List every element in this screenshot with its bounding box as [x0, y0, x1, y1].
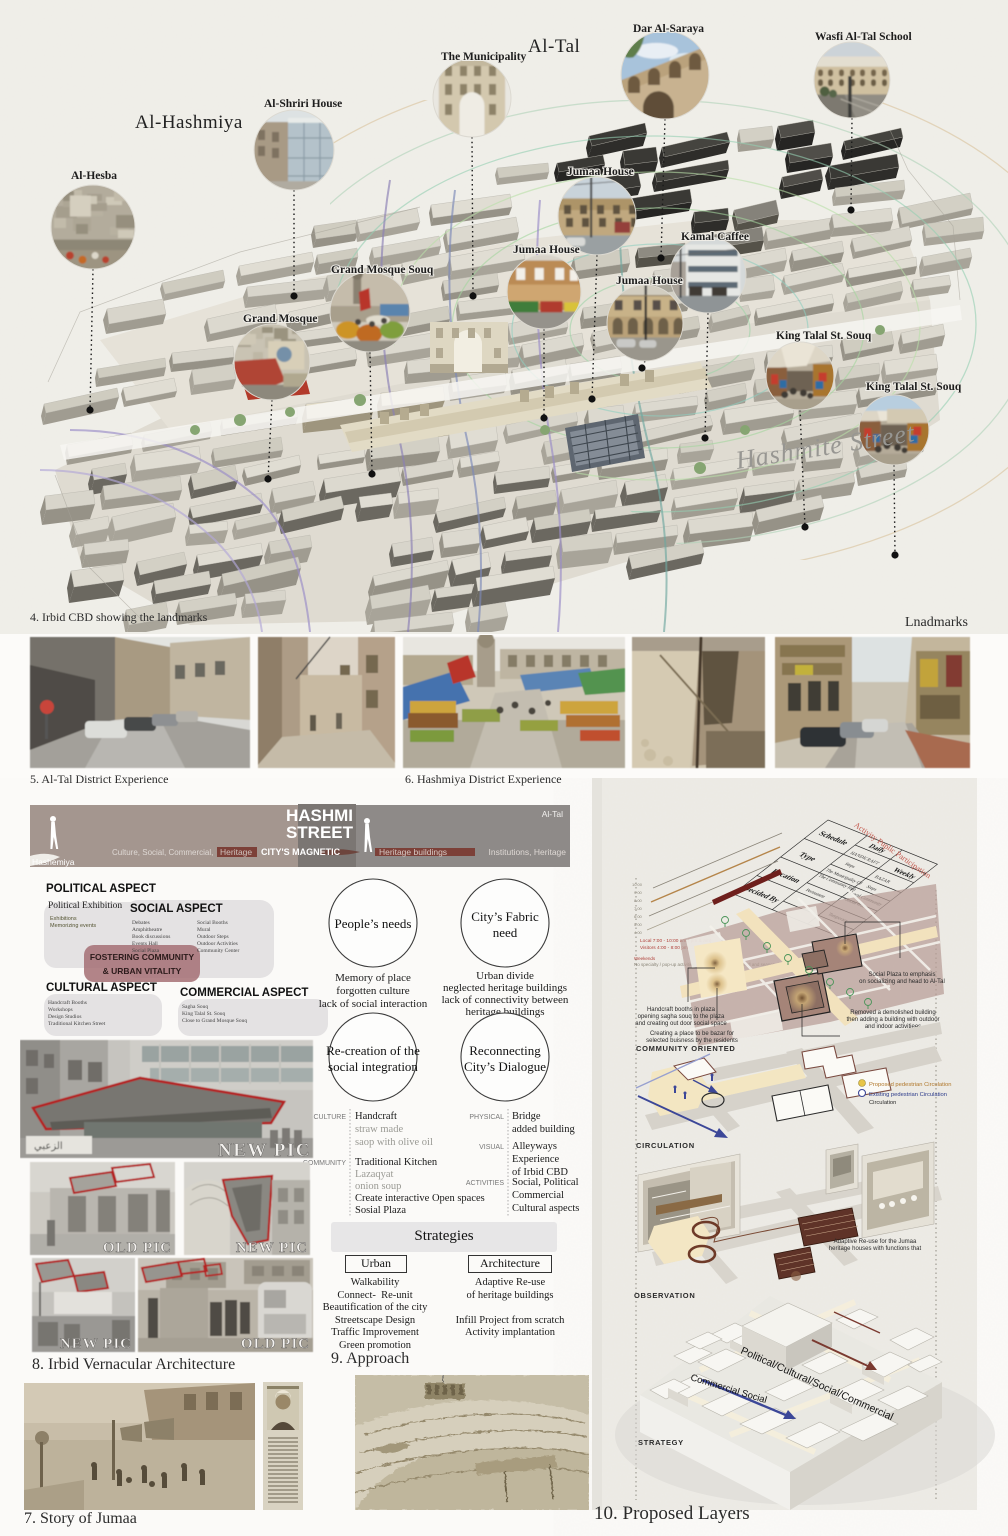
svg-text:Amphitheatre: Amphitheatre — [132, 927, 163, 933]
svg-text:social integration: social integration — [328, 1059, 418, 1074]
svg-text:Community Center: Community Center — [197, 948, 239, 954]
svg-text:and creating out door social s: and creating out door social space — [635, 1021, 727, 1027]
svg-text:neglected heritage buildings: neglected heritage buildings — [443, 982, 567, 994]
svg-text:Bridge: Bridge — [512, 1111, 541, 1122]
svg-text:STRATEGY: STRATEGY — [638, 1438, 684, 1447]
svg-text:Handcraft: Handcraft — [355, 1111, 397, 1122]
svg-text:SOCIAL ASPECT: SOCIAL ASPECT — [130, 903, 223, 915]
svg-text:People’s needs: People’s needs — [335, 916, 412, 931]
svg-text:OLD PIC: OLD PIC — [103, 1240, 172, 1256]
svg-text:Create interactive Open spaces: Create interactive Open spaces — [355, 1193, 485, 1204]
svg-text:Kamal Caffee: Kamal Caffee — [681, 231, 749, 243]
svg-text:straw made: straw made — [355, 1124, 403, 1135]
svg-text:Experience: Experience — [512, 1154, 560, 1165]
svg-text:Heritage: Heritage — [220, 847, 252, 857]
svg-text:ACTIVITIES: ACTIVITIES — [466, 1180, 504, 1187]
svg-text:Mural: Mural — [197, 927, 211, 933]
svg-text:City’s Fabric: City’s Fabric — [471, 909, 539, 924]
svg-text:forgotten culture: forgotten culture — [336, 985, 410, 997]
svg-text:Social Plaza: Social Plaza — [132, 948, 160, 954]
svg-text:Workshops: Workshops — [48, 1007, 73, 1013]
svg-text:CIRCULATION: CIRCULATION — [636, 1141, 695, 1150]
svg-text:Social Plaza to emphasis: Social Plaza to emphasis — [868, 972, 935, 978]
svg-text:heritage houses with function: heritage houses with functions that — [829, 1246, 922, 1252]
svg-text:9:00: 9:00 — [634, 890, 643, 895]
svg-text:Circulation: Circulation — [869, 1100, 896, 1106]
svg-text:Permanent: Permanent — [803, 889, 826, 900]
svg-text:Culture, Social, Commercial,: Culture, Social, Commercial, — [112, 848, 213, 857]
svg-text:CULTURE: CULTURE — [313, 1114, 346, 1121]
svg-text:Memory of place: Memory of place — [335, 972, 411, 984]
svg-text:Cultural aspects: Cultural aspects — [512, 1203, 579, 1214]
svg-text:need: need — [493, 925, 518, 940]
svg-text:Jumaa House: Jumaa House — [513, 244, 580, 256]
svg-text:Close to Grand Mosque Souq: Close to Grand Mosque Souq — [182, 1018, 247, 1024]
svg-text:CULTURAL ASPECT: CULTURAL ASPECT — [46, 982, 157, 994]
svg-text:Handcraft booths in plaza: Handcraft booths in plaza — [647, 1007, 716, 1013]
svg-text:The Municipality: The Municipality — [441, 51, 527, 63]
svg-text:Type: Type — [796, 851, 818, 863]
svg-text:Outdoor Steps: Outdoor Steps — [197, 934, 229, 940]
svg-text:Reconnecting: Reconnecting — [469, 1043, 541, 1058]
svg-text:Commercial: Commercial — [512, 1190, 564, 1201]
svg-text:then adding a building with ou: then adding a building with outdoor — [846, 1017, 939, 1023]
svg-text:10:00: 10:00 — [632, 882, 643, 887]
svg-text:Visitors 4:00 - 8:00 pm: Visitors 4:00 - 8:00 pm — [640, 945, 688, 951]
svg-text:Book discussions: Book discussions — [132, 934, 170, 940]
svg-text:Design Studios: Design Studios — [48, 1014, 81, 1020]
svg-text:Steps: Steps — [864, 885, 877, 892]
svg-text:Outdoor Activities: Outdoor Activities — [197, 941, 238, 947]
svg-text:Social, Political: Social, Political — [512, 1177, 579, 1188]
svg-text:Steps: Steps — [843, 862, 856, 869]
svg-text:4:00: 4:00 — [634, 930, 643, 935]
svg-text:Grand Mosque: Grand Mosque — [243, 313, 317, 325]
svg-text:Jumaa House: Jumaa House — [616, 275, 683, 287]
svg-text:Alleyways: Alleyways — [512, 1141, 557, 1152]
svg-text:Al-Hesba: Al-Hesba — [71, 170, 117, 182]
svg-text:COMMERCIAL ASPECT: COMMERCIAL ASPECT — [180, 987, 308, 999]
svg-text:Existing pedestrian Circulatio: Existing pedestrian Circulation — [869, 1092, 947, 1098]
svg-text:Adaptive Re-use for the Jumaa: Adaptive Re-use for the Jumaa — [834, 1239, 917, 1245]
svg-text:Traditional Kitchen: Traditional Kitchen — [355, 1157, 438, 1168]
svg-text:Hashemiya: Hashemiya — [32, 857, 75, 867]
svg-text:Lazaqyat: Lazaqyat — [355, 1169, 394, 1180]
svg-text:Dar Al-Saraya: Dar Al-Saraya — [633, 23, 704, 35]
svg-text:onion soup: onion soup — [355, 1181, 401, 1192]
svg-text:Exhibitions: Exhibitions — [50, 916, 77, 922]
svg-text:Sagha Souq: Sagha Souq — [182, 1004, 208, 1010]
svg-text:PHYSICAL: PHYSICAL — [469, 1114, 504, 1121]
svg-text:Jumaa House: Jumaa House — [567, 166, 634, 178]
svg-text:saop with olive oil: saop with olive oil — [355, 1137, 433, 1148]
svg-text:Creating a place to be bazar f: Creating a place to be bazar for — [650, 1031, 734, 1037]
svg-text:5:00: 5:00 — [634, 922, 643, 927]
svg-text:Sosial Plaza: Sosial Plaza — [355, 1205, 406, 1216]
svg-text:Wasfi Al-Tal School: Wasfi Al-Tal School — [815, 31, 912, 43]
svg-text:6:00: 6:00 — [634, 914, 643, 919]
svg-text:Traditional Kitchen Street: Traditional Kitchen Street — [48, 1021, 106, 1027]
svg-text:on socializing and head to Al-: on socializing and head to Al-Tal — [859, 979, 945, 985]
svg-text:NEW PIC: NEW PIC — [236, 1240, 308, 1256]
svg-text:NEW PIC: NEW PIC — [218, 1140, 311, 1161]
svg-text:8:00: 8:00 — [634, 898, 643, 903]
svg-text:POLITICAL ASPECT: POLITICAL ASPECT — [46, 883, 156, 895]
svg-text:Re-creation of the: Re-creation of the — [326, 1043, 420, 1058]
svg-text:COMMUNITY ORIENTED: COMMUNITY ORIENTED — [636, 1044, 736, 1053]
svg-text:Social Booths: Social Booths — [197, 920, 228, 926]
svg-text:Al-Shriri House: Al-Shriri House — [264, 98, 342, 110]
svg-text:الزعبي: الزعبي — [34, 1141, 63, 1152]
svg-text:King Talal St. Souq: King Talal St. Souq — [866, 381, 962, 393]
svg-text:Urban divide: Urban divide — [476, 970, 534, 982]
svg-text:Weekends: Weekends — [634, 956, 656, 961]
svg-text:& URBAN VITALITY: & URBAN VITALITY — [103, 966, 182, 976]
svg-text:NEW PIC: NEW PIC — [60, 1336, 132, 1352]
svg-text:Events Hall: Events Hall — [132, 941, 158, 947]
svg-text:STREET: STREET — [286, 823, 354, 842]
svg-text:Handcraft Booths: Handcraft Booths — [48, 999, 87, 1006]
svg-text:7:00: 7:00 — [634, 906, 643, 911]
svg-text:lack of connectivity between: lack of connectivity between — [442, 994, 569, 1006]
svg-text:King Talal St. Souq: King Talal St. Souq — [776, 330, 872, 342]
svg-text:Memorizing events: Memorizing events — [50, 923, 96, 929]
svg-text:Proposed pedestrian Circulatio: Proposed pedestrian Circulation — [869, 1082, 952, 1088]
svg-text:King Talal St. Souq: King Talal St. Souq — [182, 1011, 225, 1017]
svg-text:BAZAR: BAZAR — [872, 875, 891, 884]
svg-text:City’s Dialogue: City’s Dialogue — [464, 1059, 546, 1074]
svg-text:opening sagha souq to the plaz: opening sagha souq to the plaza — [638, 1014, 725, 1020]
svg-text:Debates: Debates — [132, 920, 150, 926]
svg-text:Grand Mosque Souq: Grand Mosque Souq — [331, 264, 434, 276]
svg-text:OLD PIC: OLD PIC — [241, 1336, 310, 1352]
svg-text:Political Exhibition: Political Exhibition — [48, 901, 122, 911]
svg-text:Schedule: Schedule — [816, 830, 851, 847]
svg-text:lack of social interaction: lack of social interaction — [319, 998, 428, 1010]
svg-text:VISUAL: VISUAL — [479, 1144, 504, 1151]
svg-text:added building: added building — [512, 1124, 575, 1135]
svg-text:Removed a demolished building: Removed a demolished building — [850, 1010, 935, 1016]
svg-text:Al-Tal: Al-Tal — [542, 809, 563, 819]
svg-text:OBSERVATION: OBSERVATION — [634, 1291, 695, 1300]
